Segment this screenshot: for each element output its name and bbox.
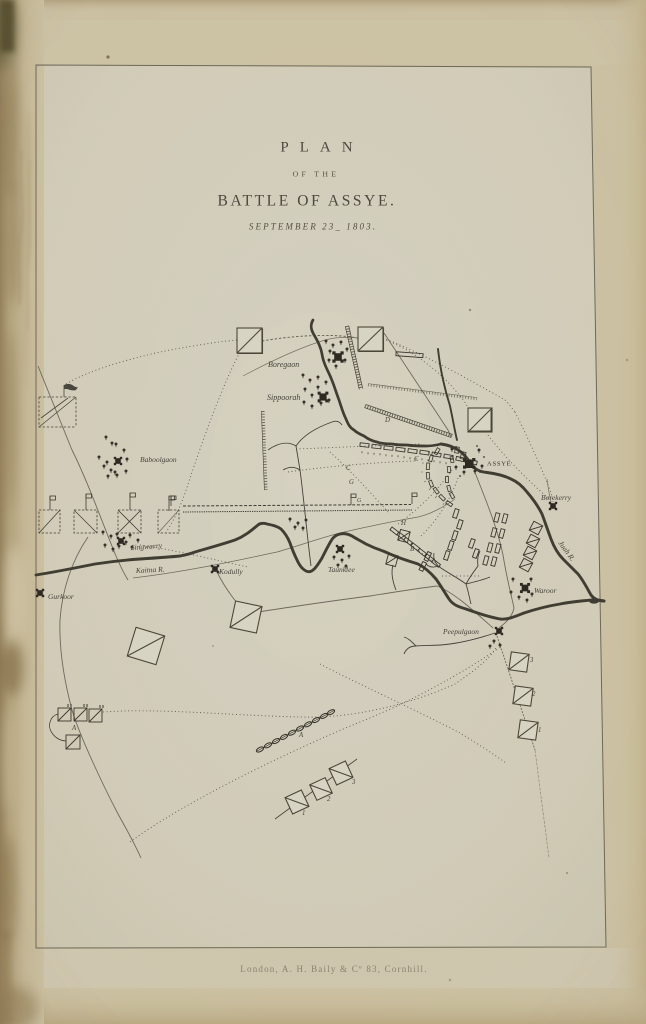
svg-text:G: G xyxy=(349,479,354,486)
svg-text:C: C xyxy=(346,465,351,472)
svg-text:1: 1 xyxy=(302,810,305,817)
svg-text:A: A xyxy=(71,725,77,732)
svg-text:Baboolgaon: Baboolgaon xyxy=(140,455,177,464)
svg-text:G: G xyxy=(357,498,362,504)
svg-text:London, A. H. Baily & Cº 83, C: London, A. H. Baily & Cº 83, Cornhill. xyxy=(240,964,427,974)
svg-text:D: D xyxy=(384,417,390,424)
svg-text:ASSYE: ASSYE xyxy=(487,461,511,468)
svg-text:A: A xyxy=(298,732,304,739)
svg-text:2: 2 xyxy=(532,691,536,698)
svg-text:Borekerry: Borekerry xyxy=(541,493,572,502)
svg-text:BATTLE OF ASSYE.: BATTLE OF ASSYE. xyxy=(218,193,397,210)
svg-text:Taunklee: Taunklee xyxy=(328,565,355,574)
svg-text:Gurkoor: Gurkoor xyxy=(48,592,74,601)
svg-text:OF THE: OF THE xyxy=(293,170,340,179)
svg-text:Kodully: Kodully xyxy=(218,567,243,576)
svg-text:Peepulgaon: Peepulgaon xyxy=(442,627,479,636)
svg-text:Sippoorah: Sippoorah xyxy=(267,393,300,402)
svg-text:3: 3 xyxy=(529,657,534,664)
svg-text:Waroor: Waroor xyxy=(534,586,556,595)
svg-text:Kaitna R.: Kaitna R. xyxy=(135,564,165,575)
svg-text:B: B xyxy=(410,546,414,553)
svg-text:PLAN: PLAN xyxy=(280,140,363,156)
svg-text:SEPTEMBER 23_ 1803.: SEPTEMBER 23_ 1803. xyxy=(249,222,377,232)
svg-text:Boregaon: Boregaon xyxy=(268,360,299,369)
svg-text:2: 2 xyxy=(327,796,331,803)
svg-text:1: 1 xyxy=(538,727,541,734)
svg-text:3: 3 xyxy=(351,779,356,786)
svg-text:C: C xyxy=(414,456,419,463)
